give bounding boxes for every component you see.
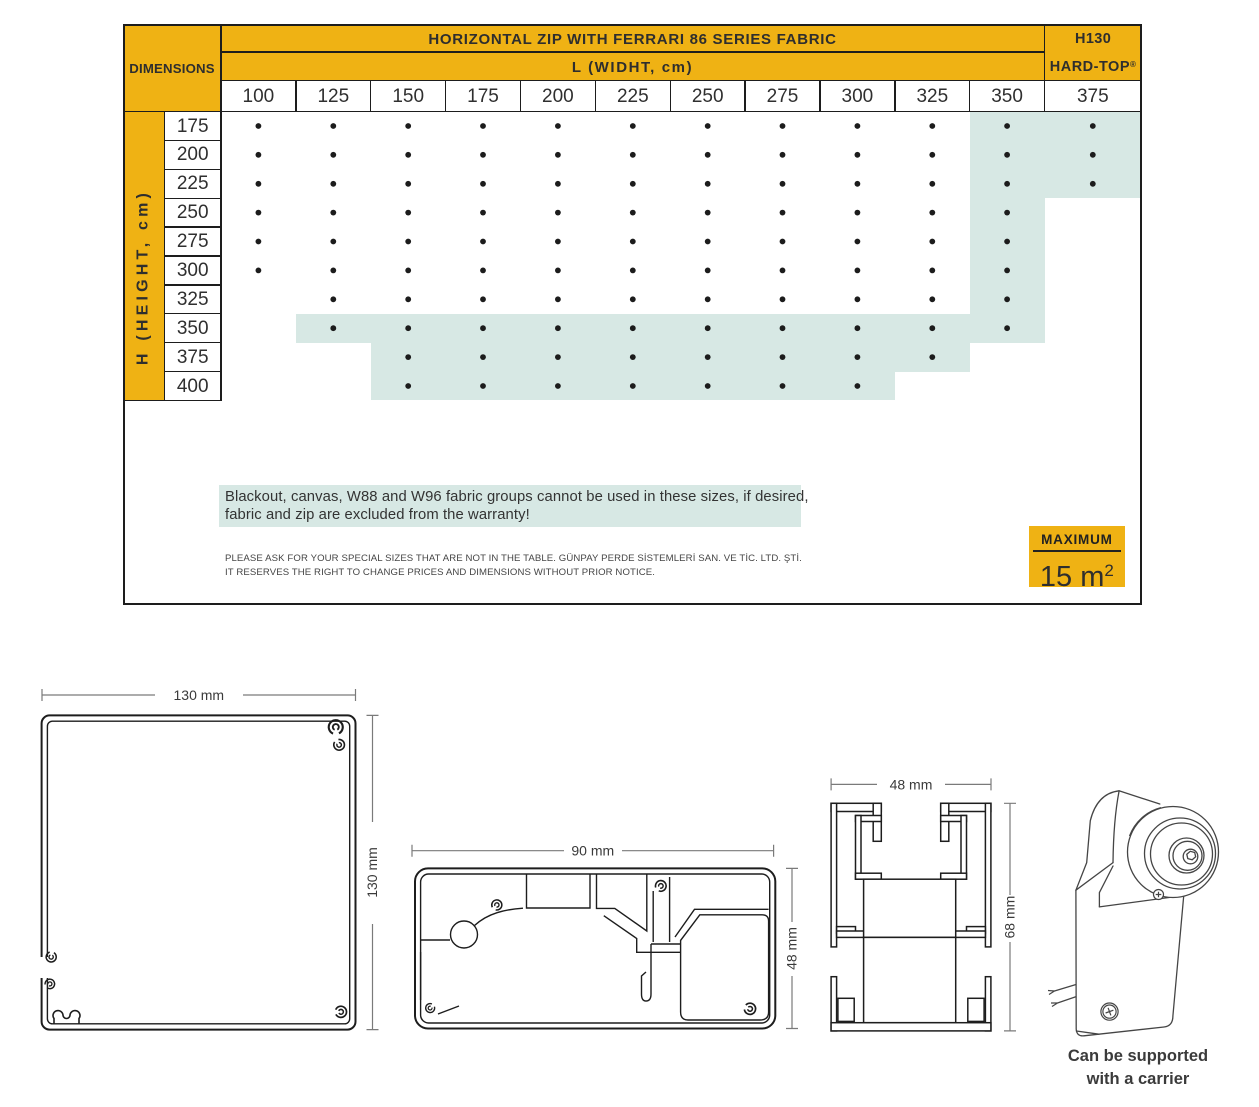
svg-text:130 mm: 130 mm xyxy=(364,847,380,898)
svg-text:90 mm: 90 mm xyxy=(571,843,614,859)
svg-text:48 mm: 48 mm xyxy=(890,776,933,792)
svg-text:48 mm: 48 mm xyxy=(784,927,800,970)
svg-text:130 mm: 130 mm xyxy=(174,687,225,703)
svg-text:68 mm: 68 mm xyxy=(1002,896,1018,939)
